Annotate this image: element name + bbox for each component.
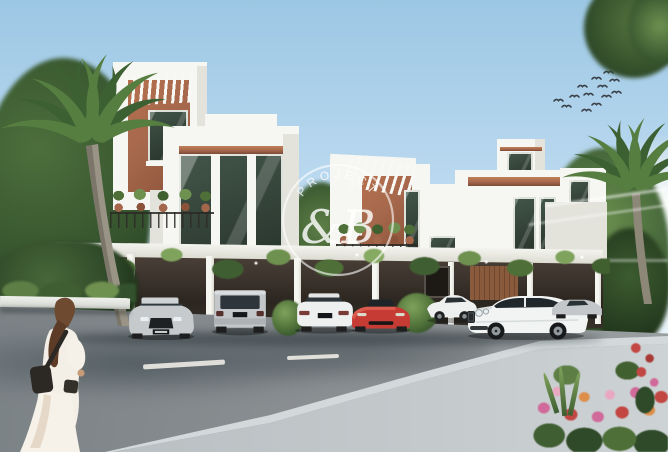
svg-text:PROJECT: PROJECT [294,167,382,199]
rendering-scene: PROJECT &B [0,0,668,452]
watermark-arc-text: PROJECT [294,167,382,199]
pedestrian-woman [6,296,110,452]
car-red-sports-front [350,294,412,334]
car-suv-rear [210,284,270,336]
palm-tree-right [552,108,668,313]
watermark-monogram: &B [301,200,376,254]
watermark-logo: PROJECT &B [269,151,407,289]
car-white-sedan-rear [293,292,357,334]
car-silver-sedan-front [126,294,196,340]
villa-4-eave-strip [500,147,542,151]
tall-red-flowers [622,336,668,416]
